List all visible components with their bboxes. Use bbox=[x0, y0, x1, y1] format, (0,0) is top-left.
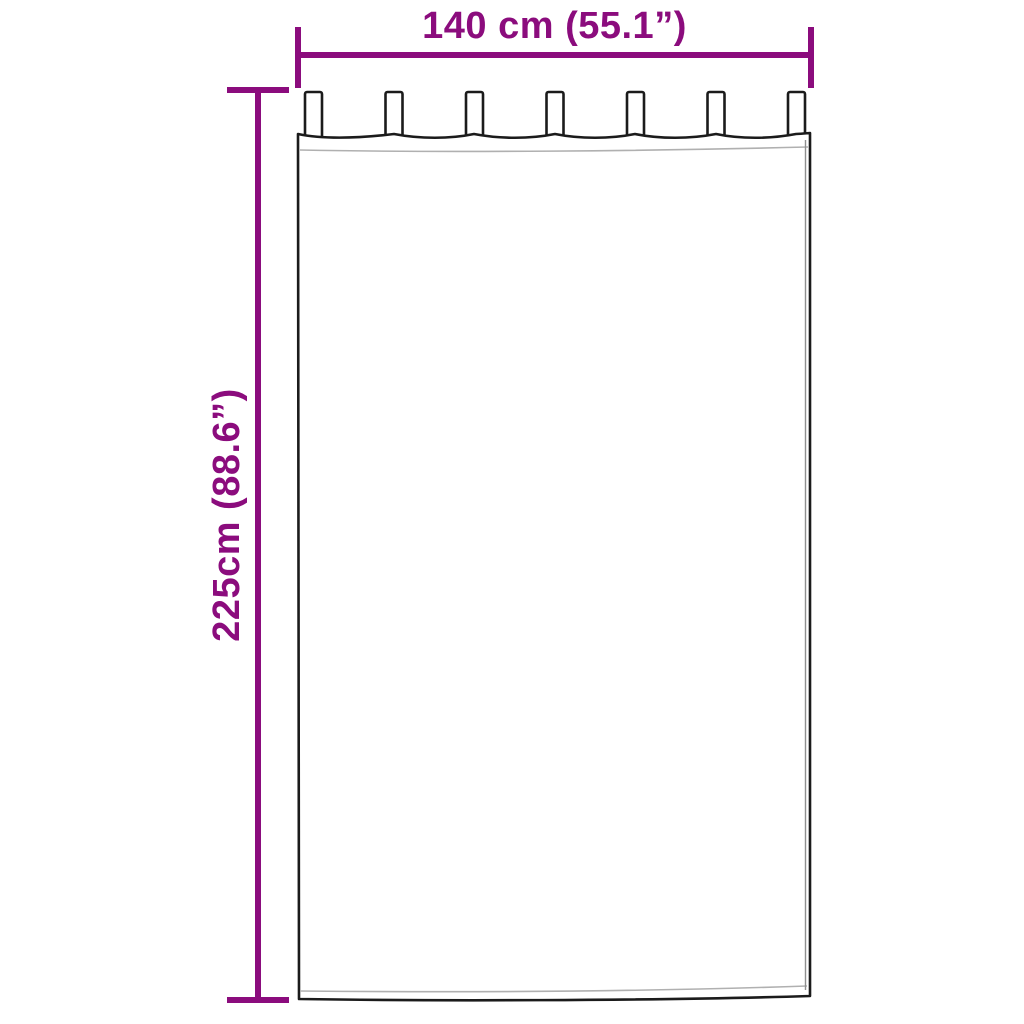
curtain-body bbox=[298, 133, 810, 1000]
curtain-tab bbox=[305, 92, 322, 140]
product-dimension-diagram: 140 cm (55.1”) 225cm (88.6”) bbox=[0, 0, 1024, 1024]
curtain-drawing bbox=[0, 0, 1024, 1024]
